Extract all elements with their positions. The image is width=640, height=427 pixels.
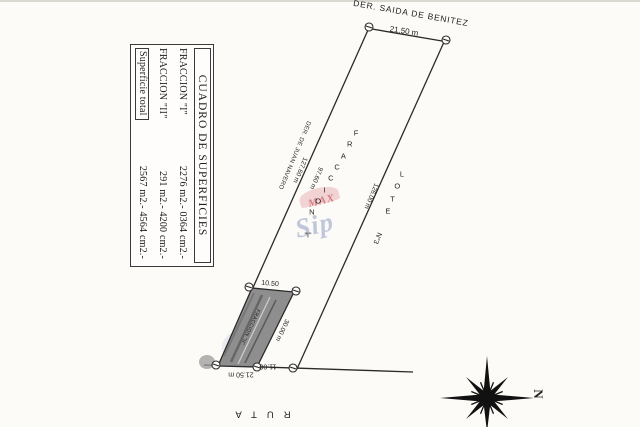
south-length-label: 21.50 m (228, 371, 253, 378)
compass-north-label: N (530, 389, 546, 398)
survey-plan-sheet: CUADRO DE SUPERFICIES FRACCION "I" 2276 … (0, 0, 640, 427)
fraccion-ii-bottom-length-label: 11.00 (260, 363, 277, 370)
compass-rose (440, 356, 534, 427)
fraccion-i-suffix: "I" (305, 233, 312, 240)
fraccion-ii-top-length-label: 10.50 (261, 280, 279, 289)
route-label: RUTA (225, 409, 290, 420)
plan-linework (0, 0, 640, 427)
